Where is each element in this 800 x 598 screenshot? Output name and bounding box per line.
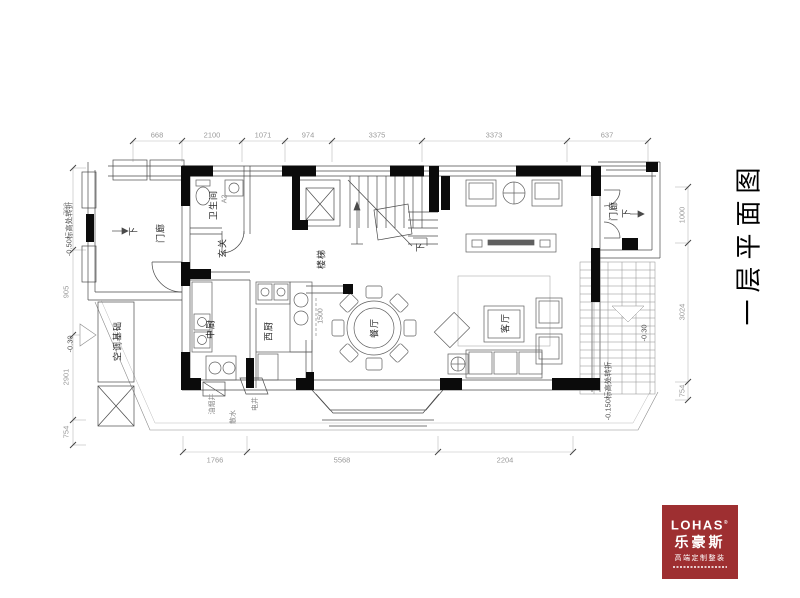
down-arrow-label-stairs: 下 bbox=[414, 242, 427, 252]
dim-top-2: 2100 bbox=[204, 131, 221, 140]
room-label-living: 客厅 bbox=[499, 313, 512, 333]
room-label-dining: 餐厅 bbox=[368, 318, 381, 338]
down-arrow-label-porch-left: 下 bbox=[127, 226, 140, 236]
dim-bottom-3: 2204 bbox=[497, 456, 514, 465]
registered-mark-icon: ® bbox=[724, 520, 729, 526]
logo-chinese-name: 乐豪斯 bbox=[675, 533, 726, 551]
room-code-bathroom: A2 bbox=[222, 195, 229, 204]
room-label-entry: 玄关 bbox=[216, 238, 229, 258]
wall-solids bbox=[86, 162, 658, 390]
elevation-value-left: -0.30 bbox=[66, 335, 75, 352]
room-label-stairs: 楼梯 bbox=[315, 249, 328, 269]
level-note-right: -0.150标高处转折 bbox=[603, 362, 614, 421]
dim-left-4: 754 bbox=[62, 426, 71, 439]
dim-top-7: 637 bbox=[601, 131, 614, 140]
dim-right-3: 754 bbox=[678, 385, 687, 398]
dim-right-2: 3024 bbox=[678, 304, 687, 321]
down-arrow-label-porch-right: 下 bbox=[620, 208, 633, 218]
logo-fineprint-stripe bbox=[673, 566, 727, 568]
room-label-kitchen-western: 西厨 bbox=[262, 321, 275, 341]
dim-top-1: 668 bbox=[151, 131, 164, 140]
room-label-porch-left: 门廊 bbox=[154, 223, 167, 243]
elevation-mark-left bbox=[80, 324, 96, 346]
elevation-value-right: -0.30 bbox=[640, 324, 649, 341]
dim-left-2: 905 bbox=[62, 286, 71, 299]
logo-brand-text: LOHAS® bbox=[671, 516, 729, 532]
dim-top-3: 1071 bbox=[255, 131, 272, 140]
floor-plan-page: 门廊 下 卫生间 A2 玄关 楼梯 下 中厨 西厨 餐厅 客厅 门廊 下 空调基… bbox=[0, 0, 800, 598]
dim-bottom-2: 5568 bbox=[334, 456, 351, 465]
dim-bottom-1: 1766 bbox=[207, 456, 224, 465]
label-apron: 散水 bbox=[228, 410, 238, 424]
label-oil-flue-shaft: 油烟井 bbox=[207, 394, 217, 415]
plan-title: 一层平面图 bbox=[729, 160, 766, 325]
label-ac-base: 空调基础 bbox=[111, 321, 124, 361]
room-label-kitchen-chinese: 中厨 bbox=[204, 319, 217, 339]
lohas-logo: LOHAS® 乐豪斯 高端定制整装 bbox=[662, 505, 738, 579]
dim-left-3: 2901 bbox=[62, 369, 71, 386]
dim-top-5: 3375 bbox=[369, 131, 386, 140]
room-label-bathroom: 卫生间 bbox=[207, 190, 220, 220]
dim-top-4: 974 bbox=[302, 131, 315, 140]
logo-tagline: 高端定制整装 bbox=[675, 555, 726, 563]
label-electric-shaft: 电井 bbox=[250, 397, 260, 411]
counter-note: 1500 bbox=[318, 308, 325, 324]
dim-right-1: 1000 bbox=[678, 207, 687, 224]
dim-left-1: 798 bbox=[62, 203, 71, 216]
room-label-porch-right: 门廊 bbox=[607, 201, 620, 221]
dim-top-6: 3373 bbox=[486, 131, 503, 140]
